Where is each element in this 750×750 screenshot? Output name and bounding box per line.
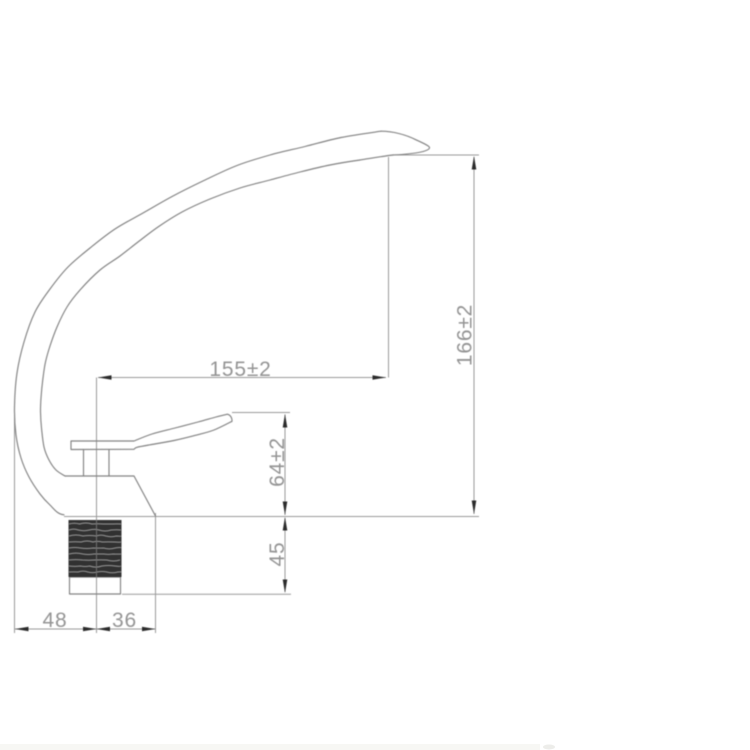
svg-text:36: 36 (112, 609, 137, 632)
svg-text:155±2: 155±2 (209, 358, 271, 381)
svg-text:64±2: 64±2 (266, 437, 289, 487)
svg-text:48: 48 (43, 609, 68, 632)
svg-text:45: 45 (266, 542, 289, 567)
svg-text:166±2: 166±2 (454, 304, 477, 366)
